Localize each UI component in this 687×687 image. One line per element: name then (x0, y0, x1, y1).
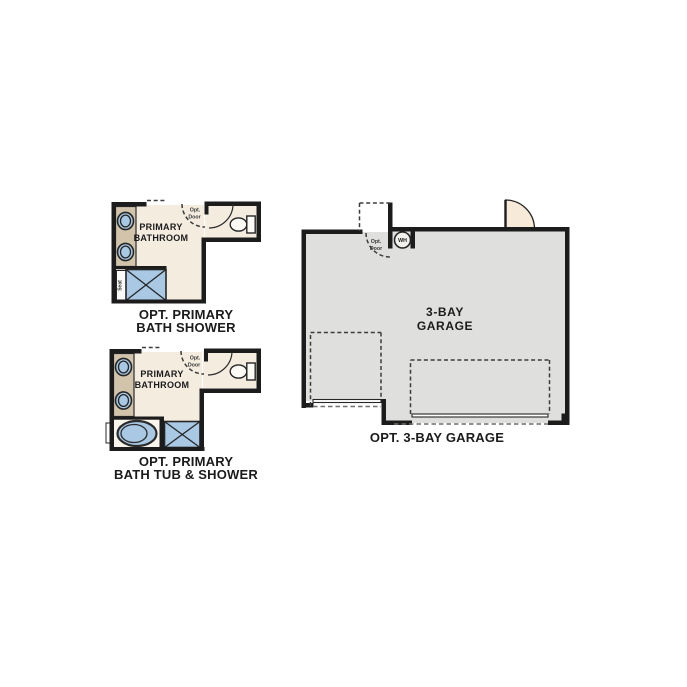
wall (112, 202, 117, 304)
opt-door-label: Door (188, 363, 200, 369)
plan-garage: 3-BAY GARAGE Opt. Door WH OPT. 3-BAY GAR… (302, 200, 570, 445)
toilet-icon (230, 365, 247, 378)
room-label: BATHROOM (134, 233, 189, 243)
plan-caption: OPT. 3-BAY GARAGE (370, 430, 504, 445)
wall (204, 389, 261, 394)
room-label: PRIMARY (139, 222, 182, 232)
wall (388, 203, 393, 249)
wall (382, 399, 387, 425)
toilet-tank-icon (247, 363, 255, 380)
wall (160, 417, 165, 452)
opt-door-label: Door (370, 246, 382, 252)
wall (110, 417, 162, 420)
wall (110, 349, 142, 354)
wall (202, 238, 207, 304)
opt-door-label: Door (188, 215, 200, 221)
wall (565, 227, 570, 425)
wall (302, 230, 363, 235)
floorplan-svg: PRIMARY BATHROOM Opt. Door Seat OPT. PRI… (0, 0, 687, 687)
wall (302, 230, 307, 409)
water-heater-label: WH (398, 238, 407, 244)
garage-door-right (412, 414, 548, 417)
wall (302, 403, 314, 408)
opt-door-label: Opt. (190, 208, 201, 214)
room-label: PRIMARY (140, 369, 183, 379)
wall (112, 202, 147, 207)
opt-door-label: Opt. (371, 239, 382, 245)
plan-caption: BATH TUB & SHOWER (114, 467, 258, 482)
entry-door-swing-icon (506, 200, 535, 229)
opt-door-label: Opt. (190, 356, 201, 362)
garage-door-left (313, 400, 381, 403)
toilet-icon (230, 218, 247, 231)
wall (411, 227, 416, 249)
plan-bath-shower: PRIMARY BATHROOM Opt. Door Seat OPT. PRI… (112, 201, 262, 336)
room-label: GARAGE (417, 319, 473, 333)
plan-bath-tub-shower: PRIMARY BATHROOM Opt. Door OPT. PRIMARY … (106, 348, 261, 483)
wall (110, 349, 115, 451)
wall (548, 421, 570, 426)
seat-label: Seat (118, 280, 124, 291)
wall (257, 349, 262, 394)
wall (110, 447, 205, 451)
wall (393, 227, 570, 232)
wall (205, 238, 262, 243)
room-label: 3-BAY (426, 305, 464, 319)
room-label: BATHROOM (135, 380, 190, 390)
wall (257, 202, 262, 243)
toilet-tank-icon (247, 216, 255, 233)
wall (112, 300, 207, 304)
floorplan-page: PRIMARY BATHROOM Opt. Door Seat OPT. PRI… (0, 0, 687, 687)
plan-caption: BATH SHOWER (136, 320, 236, 335)
wall (200, 389, 205, 452)
